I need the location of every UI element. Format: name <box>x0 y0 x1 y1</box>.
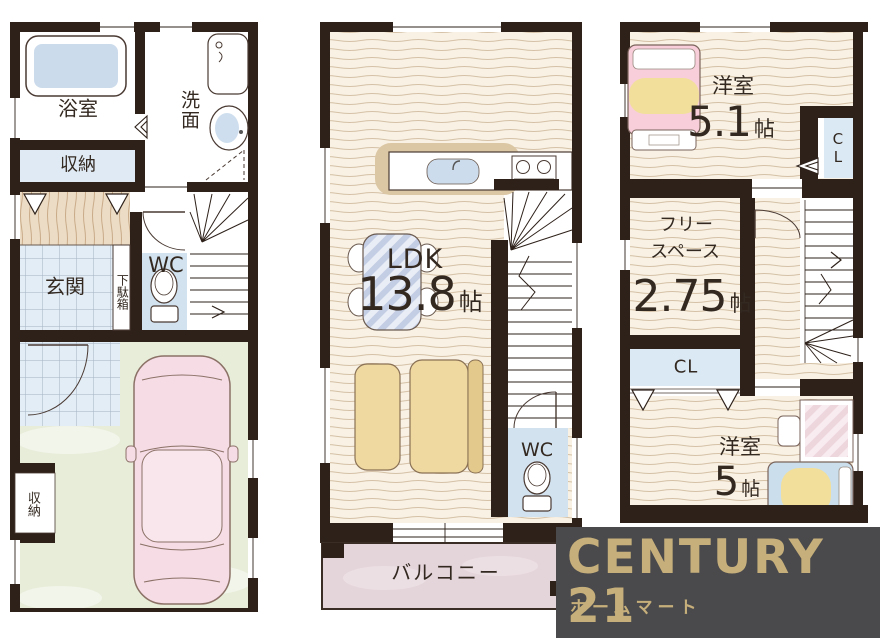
storage-strip <box>20 150 135 182</box>
floorplan-canvas: 浴室 洗面 収納 玄関 下駄箱 WC 収納 LDK 13.8帖 WC バルコニー… <box>0 0 880 638</box>
bed-pink <box>628 45 700 150</box>
shoe-cabinet <box>113 245 130 330</box>
porch-tile <box>20 342 120 426</box>
toilet-icon <box>151 269 178 322</box>
bathtub <box>26 36 126 96</box>
stairs-floor <box>800 198 853 363</box>
floor1-plan <box>8 20 260 620</box>
closet2-strip <box>630 349 740 386</box>
bottom-wall <box>620 505 868 523</box>
toilet-icon <box>523 462 551 511</box>
century21-logo: CENTURY 21 ホームマート <box>556 527 880 638</box>
kitchen-sink <box>427 159 479 184</box>
desk-chair <box>778 416 800 446</box>
washing-machine-icon <box>208 34 248 94</box>
entrance-tile <box>20 245 113 330</box>
brand-subtitle: ホームマート <box>570 593 702 618</box>
stairwell-floor <box>504 190 572 428</box>
balcony <box>322 543 572 609</box>
closet1-door <box>818 118 824 178</box>
sink-icon <box>210 106 248 150</box>
hall-white <box>142 192 190 253</box>
sofa <box>355 360 483 473</box>
dining-table <box>363 234 421 330</box>
floor2-plan <box>315 18 587 630</box>
car <box>126 356 238 604</box>
garage-storage-box <box>15 473 55 533</box>
floor3-plan <box>615 18 877 543</box>
